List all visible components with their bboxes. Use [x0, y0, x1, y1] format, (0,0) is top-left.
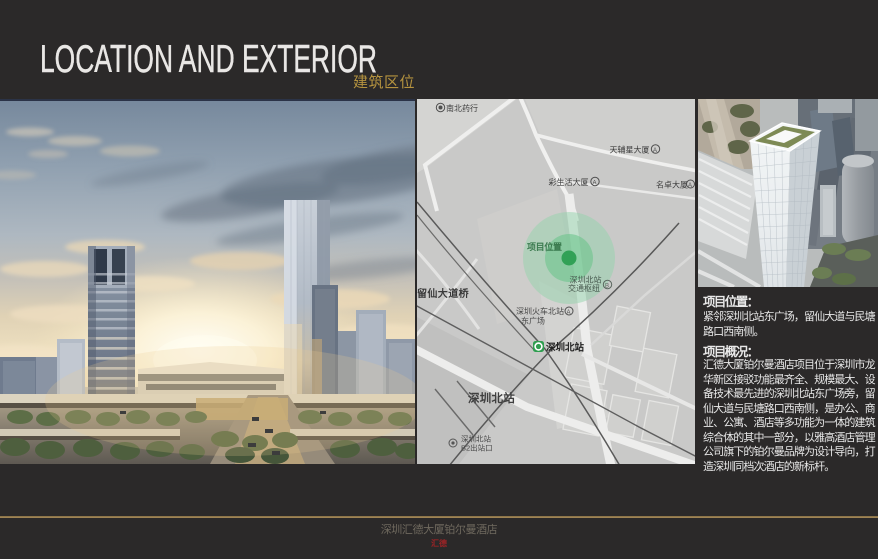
svg-text:深圳北站: 深圳北站 — [570, 275, 602, 285]
svg-text:深圳北站: 深圳北站 — [461, 434, 491, 444]
svg-text:南北药行: 南北药行 — [446, 103, 478, 113]
svg-text:东广场: 东广场 — [521, 316, 545, 326]
svg-text:深圳北站: 深圳北站 — [546, 342, 585, 354]
svg-text:B: B — [605, 284, 609, 290]
svg-text:B2出站口: B2出站口 — [461, 443, 493, 453]
svg-text:A: A — [688, 183, 692, 189]
svg-text:留仙大道桥: 留仙大道桥 — [417, 287, 470, 300]
svg-text:深圳火车北站: 深圳火车北站 — [516, 306, 564, 316]
svg-text:天辅星大厦: 天辅星大厦 — [610, 145, 650, 155]
svg-text:A: A — [567, 310, 571, 316]
svg-text:A: A — [653, 148, 657, 154]
svg-text:彩生活大厦: 彩生活大厦 — [549, 177, 589, 187]
svg-text:交通枢纽: 交通枢纽 — [568, 283, 600, 293]
svg-text:A: A — [593, 181, 597, 187]
svg-text:深圳北站: 深圳北站 — [468, 391, 515, 405]
svg-text:名卓大厦: 名卓大厦 — [656, 180, 688, 190]
svg-text:项目位置: 项目位置 — [527, 241, 562, 252]
